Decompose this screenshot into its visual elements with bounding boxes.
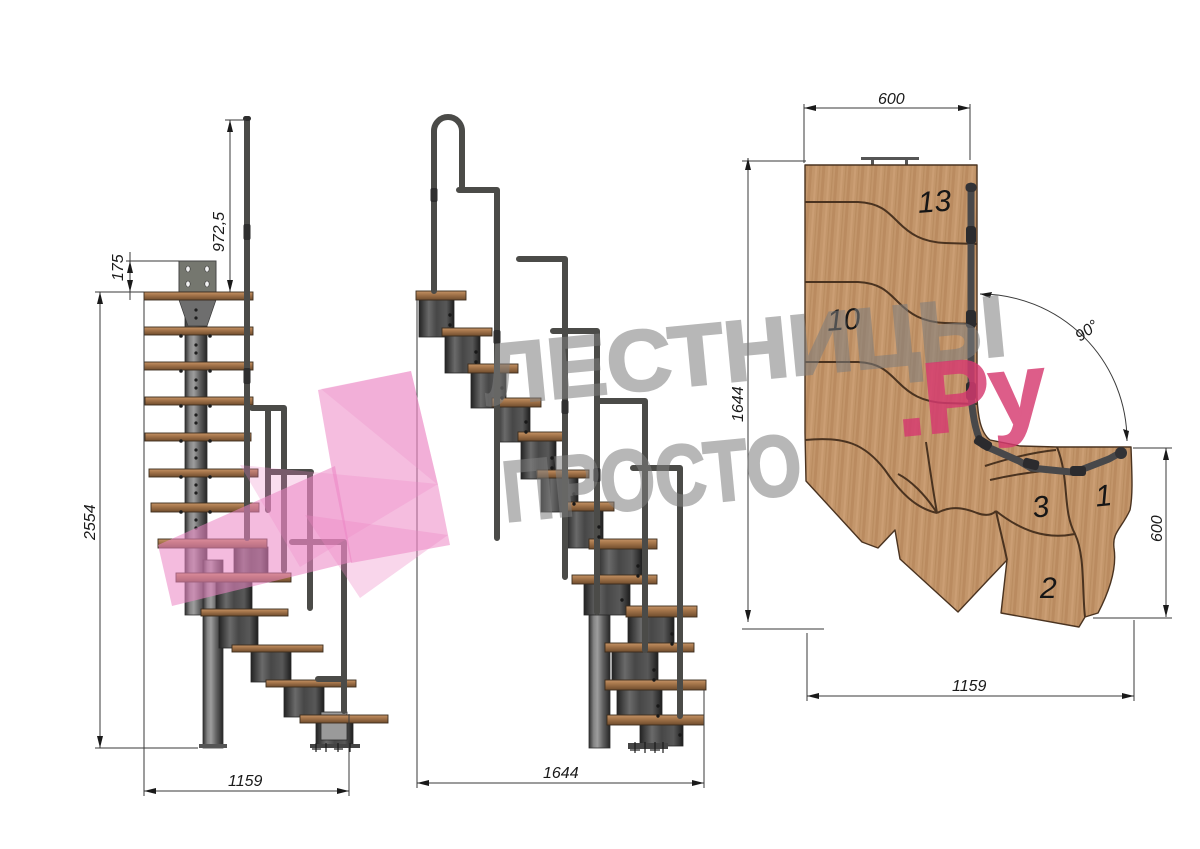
svg-text:13: 13 bbox=[917, 185, 953, 220]
svg-text:600: 600 bbox=[1149, 515, 1166, 542]
svg-text:1: 1 bbox=[1094, 479, 1114, 514]
svg-text:1644: 1644 bbox=[543, 765, 579, 782]
svg-text:175: 175 bbox=[110, 254, 127, 281]
svg-text:2: 2 bbox=[1039, 572, 1057, 605]
svg-text:600: 600 bbox=[878, 91, 905, 108]
svg-text:972,5: 972,5 bbox=[211, 212, 228, 252]
svg-text:.Ру: .Ру bbox=[890, 332, 1051, 458]
svg-text:2554: 2554 bbox=[82, 504, 99, 541]
svg-text:1159: 1159 bbox=[228, 773, 263, 790]
svg-text:1159: 1159 bbox=[952, 678, 987, 695]
